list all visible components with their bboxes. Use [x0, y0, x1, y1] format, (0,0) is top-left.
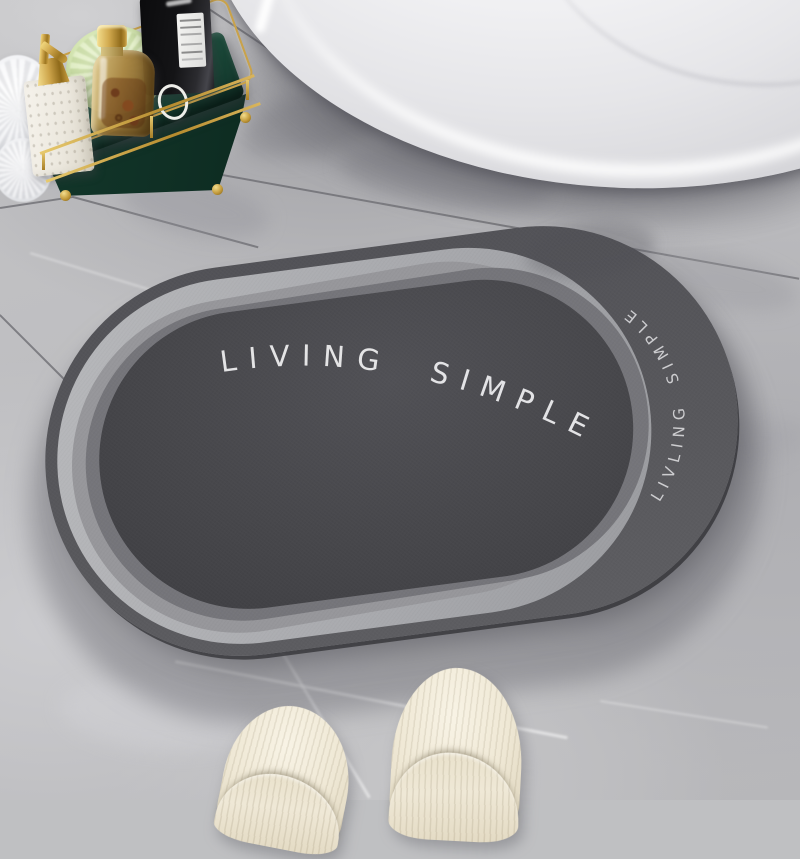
tray-foot — [212, 184, 223, 195]
tray-rail-post — [246, 80, 249, 100]
slipper-right-strap — [387, 750, 521, 845]
tray-rail-post — [150, 116, 153, 138]
scene-bathroom: { "mat": { "center_text": "LIVING SIMPLE… — [0, 0, 800, 800]
oil-bottle-gold-cap — [97, 25, 127, 47]
slipper-left-strap — [211, 764, 349, 859]
tray-foot — [60, 190, 71, 201]
black-bottle-script — [166, 0, 192, 7]
tray-foot — [240, 112, 251, 123]
tray-rail-post — [42, 152, 45, 170]
soap-dispenser-bottle — [23, 75, 95, 177]
black-bottle-label — [176, 13, 206, 68]
bathtub-side-highlight — [254, 0, 288, 34]
mat-center-text: LIVING SIMPLE — [218, 296, 609, 495]
mat-edge-text: LIVLING SIMPLE — [615, 296, 701, 507]
